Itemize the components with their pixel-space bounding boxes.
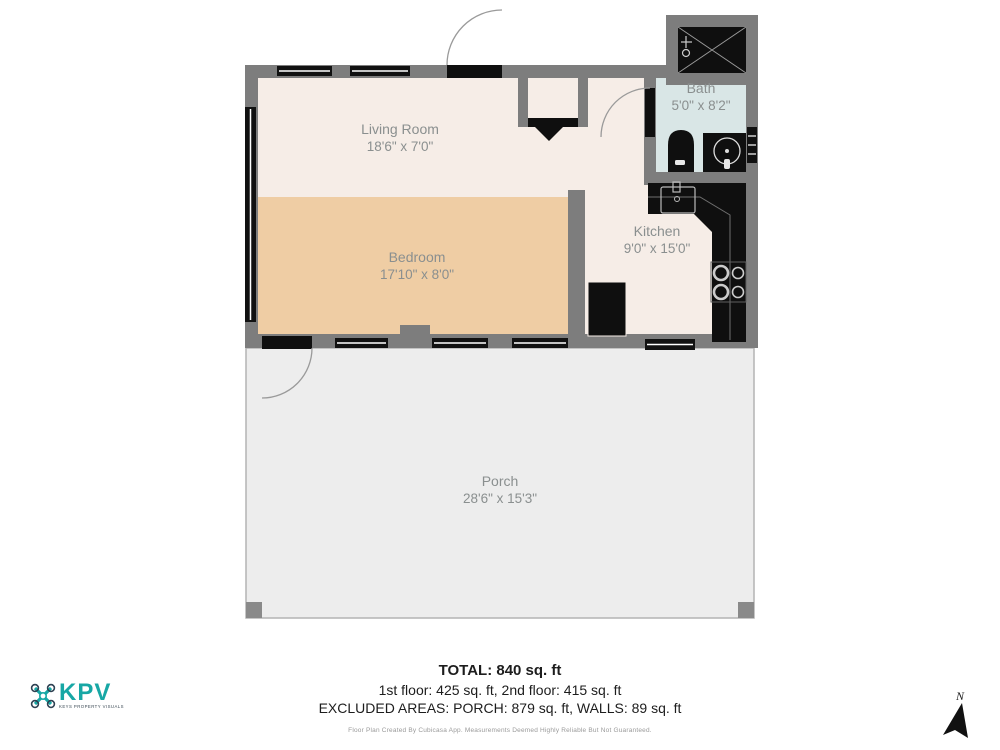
bedroom-floor — [258, 197, 568, 334]
front-door — [447, 65, 502, 78]
logo-text: KPV — [59, 683, 124, 703]
wall-kitchen-left — [568, 190, 585, 334]
north-arrow-icon: N — [936, 686, 981, 741]
summary-footer: TOTAL: 840 sq. ft 1st floor: 425 sq. ft,… — [0, 663, 1000, 734]
alcove-floor — [528, 78, 578, 118]
logo-tagline: KEYS PROPERTY VISUALS — [59, 704, 124, 709]
toilet-flush — [675, 160, 685, 165]
disclaimer-text: Floor Plan Created By Cubicasa App. Meas… — [0, 727, 1000, 734]
floor-plan — [0, 0, 1000, 660]
bath-sink-drain — [725, 149, 729, 153]
porch-floor — [246, 348, 754, 618]
bath-sink-faucet — [724, 159, 730, 169]
alcove-door — [528, 118, 578, 127]
wall-right — [746, 85, 758, 348]
compass-needle — [943, 703, 968, 738]
total-area-text: TOTAL: 840 sq. ft — [0, 663, 1000, 680]
refrigerator — [588, 282, 626, 336]
kpv-logo: KPV KEYS PROPERTY VISUALS — [30, 683, 124, 709]
compass-label: N — [955, 689, 965, 703]
bath-door — [645, 88, 655, 137]
wall-alcove-right — [578, 78, 588, 127]
kpv-drone-icon — [30, 683, 56, 709]
porch-door — [262, 336, 312, 349]
porch-post-left — [246, 602, 262, 618]
wall-pillar-notch — [400, 325, 430, 335]
porch-post-right — [738, 602, 754, 618]
wall-bath-notch — [737, 72, 746, 84]
excluded-areas-text: EXCLUDED AREAS: PORCH: 879 sq. ft, WALLS… — [0, 701, 1000, 716]
toilet — [668, 130, 694, 172]
floor-areas-text: 1st floor: 425 sq. ft, 2nd floor: 415 sq… — [0, 683, 1000, 698]
front-door-arc — [447, 10, 502, 65]
wall-alcove-left — [518, 78, 528, 127]
